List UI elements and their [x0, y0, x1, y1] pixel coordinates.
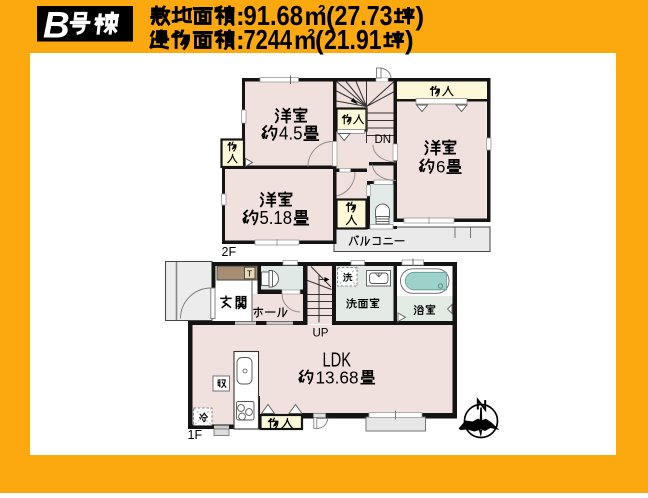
svg-text:B: B: [43, 5, 70, 46]
svg-text:21.91: 21.91: [324, 24, 382, 55]
svg-text:1F: 1F: [188, 428, 203, 442]
svg-text:): ): [405, 25, 414, 55]
svg-text:2: 2: [318, 3, 326, 18]
svg-text:6: 6: [436, 158, 445, 177]
svg-text:): ): [416, 1, 425, 31]
svg-text:7244: 7244: [244, 24, 293, 55]
svg-text:DN: DN: [375, 134, 392, 146]
svg-text:(: (: [315, 25, 324, 55]
svg-text:4.5: 4.5: [279, 124, 303, 144]
svg-text:5.18: 5.18: [260, 208, 293, 228]
svg-text:2: 2: [308, 27, 316, 42]
svg-text:T: T: [247, 269, 252, 279]
svg-text:13.68: 13.68: [316, 368, 359, 388]
svg-text:UP: UP: [313, 328, 329, 340]
svg-text:2F: 2F: [222, 245, 237, 259]
